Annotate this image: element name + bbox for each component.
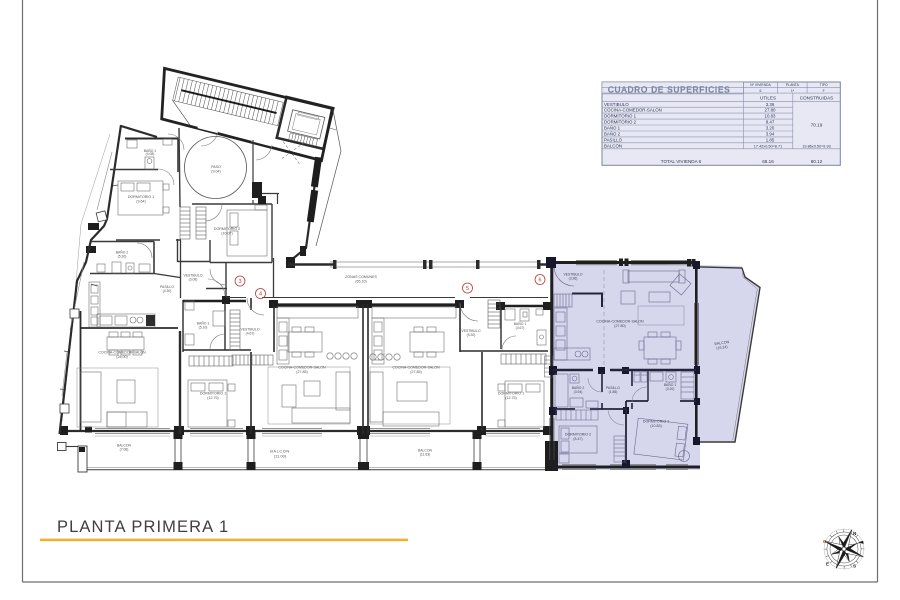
svg-text:VESTIBULO: VESTIBULO: [604, 102, 629, 107]
svg-text:UTILES: UTILES: [760, 96, 776, 101]
svg-text:(65.10): (65.10): [355, 279, 366, 283]
svg-text:6: 6: [538, 278, 541, 284]
svg-text:COCINA-COMEDOR-SALON: COCINA-COMEDOR-SALON: [98, 351, 146, 355]
svg-text:(10.07): (10.07): [221, 231, 232, 235]
svg-text:68.16: 68.16: [762, 159, 774, 164]
svg-text:3.94: 3.94: [766, 132, 775, 137]
svg-text:DORMITORIO 1: DORMITORIO 1: [498, 392, 524, 396]
svg-text:COCINA-COMEDOR-SALON: COCINA-COMEDOR-SALON: [604, 108, 662, 113]
svg-text:27.80: 27.80: [765, 108, 777, 113]
svg-text:(10.83): (10.83): [650, 424, 661, 428]
svg-text:CONSTRUIDAS: CONSTRUIDAS: [800, 96, 833, 101]
svg-text:3: 3: [238, 279, 241, 285]
svg-text:DORMITORIO 1: DORMITORIO 1: [128, 195, 154, 199]
svg-text:80.12: 80.12: [811, 159, 823, 164]
svg-text:(12.75): (12.75): [505, 396, 516, 400]
svg-text:(3.20): (3.20): [666, 387, 675, 391]
svg-text:(27.85): (27.85): [296, 370, 307, 374]
svg-text:DORMITORIO 2: DORMITORIO 2: [604, 120, 637, 125]
svg-text:3.20: 3.20: [766, 126, 775, 131]
svg-text:COCINA-COMEDOR-SALON: COCINA-COMEDOR-SALON: [278, 366, 326, 370]
svg-text:(4.30): (4.30): [163, 289, 172, 293]
svg-text:(27.85): (27.85): [410, 370, 421, 374]
svg-text:COCINA-COMEDOR-SALON: COCINA-COMEDOR-SALON: [392, 366, 440, 370]
svg-text:TIPO: TIPO: [820, 83, 828, 87]
svg-text:70.19: 70.19: [811, 123, 823, 128]
svg-text:(4.67): (4.67): [246, 332, 255, 336]
svg-text:BALCON: BALCON: [604, 143, 622, 148]
svg-text:(4.67): (4.67): [516, 326, 525, 330]
svg-text:5: 5: [466, 286, 469, 292]
svg-text:BAÑO 1: BAÑO 1: [604, 126, 621, 131]
svg-text:DORMITORIO 1: DORMITORIO 1: [200, 392, 226, 396]
svg-text:(27.80): (27.80): [614, 324, 625, 328]
svg-text:(4.08): (4.08): [146, 152, 155, 156]
svg-text:Nº VIVIENDA: Nº VIVIENDA: [750, 83, 771, 87]
svg-text:(3.94): (3.94): [574, 390, 583, 394]
svg-text:1.85: 1.85: [766, 137, 775, 142]
svg-text:19.86x0.50=9.93: 19.86x0.50=9.93: [802, 144, 830, 148]
svg-text:(9.04): (9.04): [211, 169, 220, 173]
svg-text:DORMITORIO 1: DORMITORIO 1: [604, 114, 637, 119]
svg-text:(5.30): (5.30): [467, 333, 476, 337]
svg-text:(5.30): (5.30): [118, 255, 127, 259]
svg-text:PASO: PASO: [211, 165, 221, 169]
svg-text:PLANTA: PLANTA: [786, 83, 800, 87]
svg-text:8.47: 8.47: [766, 120, 775, 125]
svg-text:ZONAS COMUNES: ZONAS COMUNES: [345, 275, 377, 279]
svg-text:(11.83): (11.83): [420, 453, 431, 457]
svg-text:(1.85): (1.85): [609, 390, 618, 394]
svg-text:COCINA-COMEDOR-SALON: COCINA-COMEDOR-SALON: [596, 320, 644, 324]
svg-text:4: 4: [259, 292, 262, 298]
svg-text:(8.47): (8.47): [573, 437, 582, 441]
svg-text:(3.08): (3.08): [189, 278, 198, 282]
svg-text:(5.10): (5.10): [199, 326, 208, 330]
svg-text:(9.64): (9.64): [136, 199, 145, 203]
svg-text:17.42x0.50=8.71: 17.42x0.50=8.71: [754, 144, 782, 148]
svg-text:O: O: [823, 539, 827, 544]
svg-text:(12.75): (12.75): [207, 396, 218, 400]
svg-text:DORMITORIO 2: DORMITORIO 2: [565, 433, 591, 437]
svg-text:DORMITORIO 1: DORMITORIO 1: [643, 420, 669, 424]
svg-text:PASILLO: PASILLO: [604, 137, 623, 142]
svg-text:PLANTA PRIMERA 1: PLANTA PRIMERA 1: [57, 518, 229, 536]
svg-text:(28.00): (28.00): [116, 355, 127, 359]
svg-text:6: 6: [760, 89, 762, 93]
svg-text:(7.08): (7.08): [120, 448, 129, 452]
svg-text:F: F: [823, 89, 825, 93]
svg-text:DORMITORIO 2: DORMITORIO 2: [214, 227, 240, 231]
svg-text:10.83: 10.83: [765, 114, 777, 119]
svg-text:(3.36): (3.36): [569, 277, 578, 281]
svg-text:TOTAL VIVIENDA 6: TOTAL VIVIENDA 6: [661, 159, 702, 164]
svg-text:E: E: [826, 562, 829, 567]
svg-text:3.36: 3.36: [766, 102, 775, 107]
svg-text:(11.00): (11.00): [274, 453, 287, 458]
svg-text:BAÑO 2: BAÑO 2: [604, 132, 621, 137]
svg-text:S: S: [853, 564, 856, 569]
